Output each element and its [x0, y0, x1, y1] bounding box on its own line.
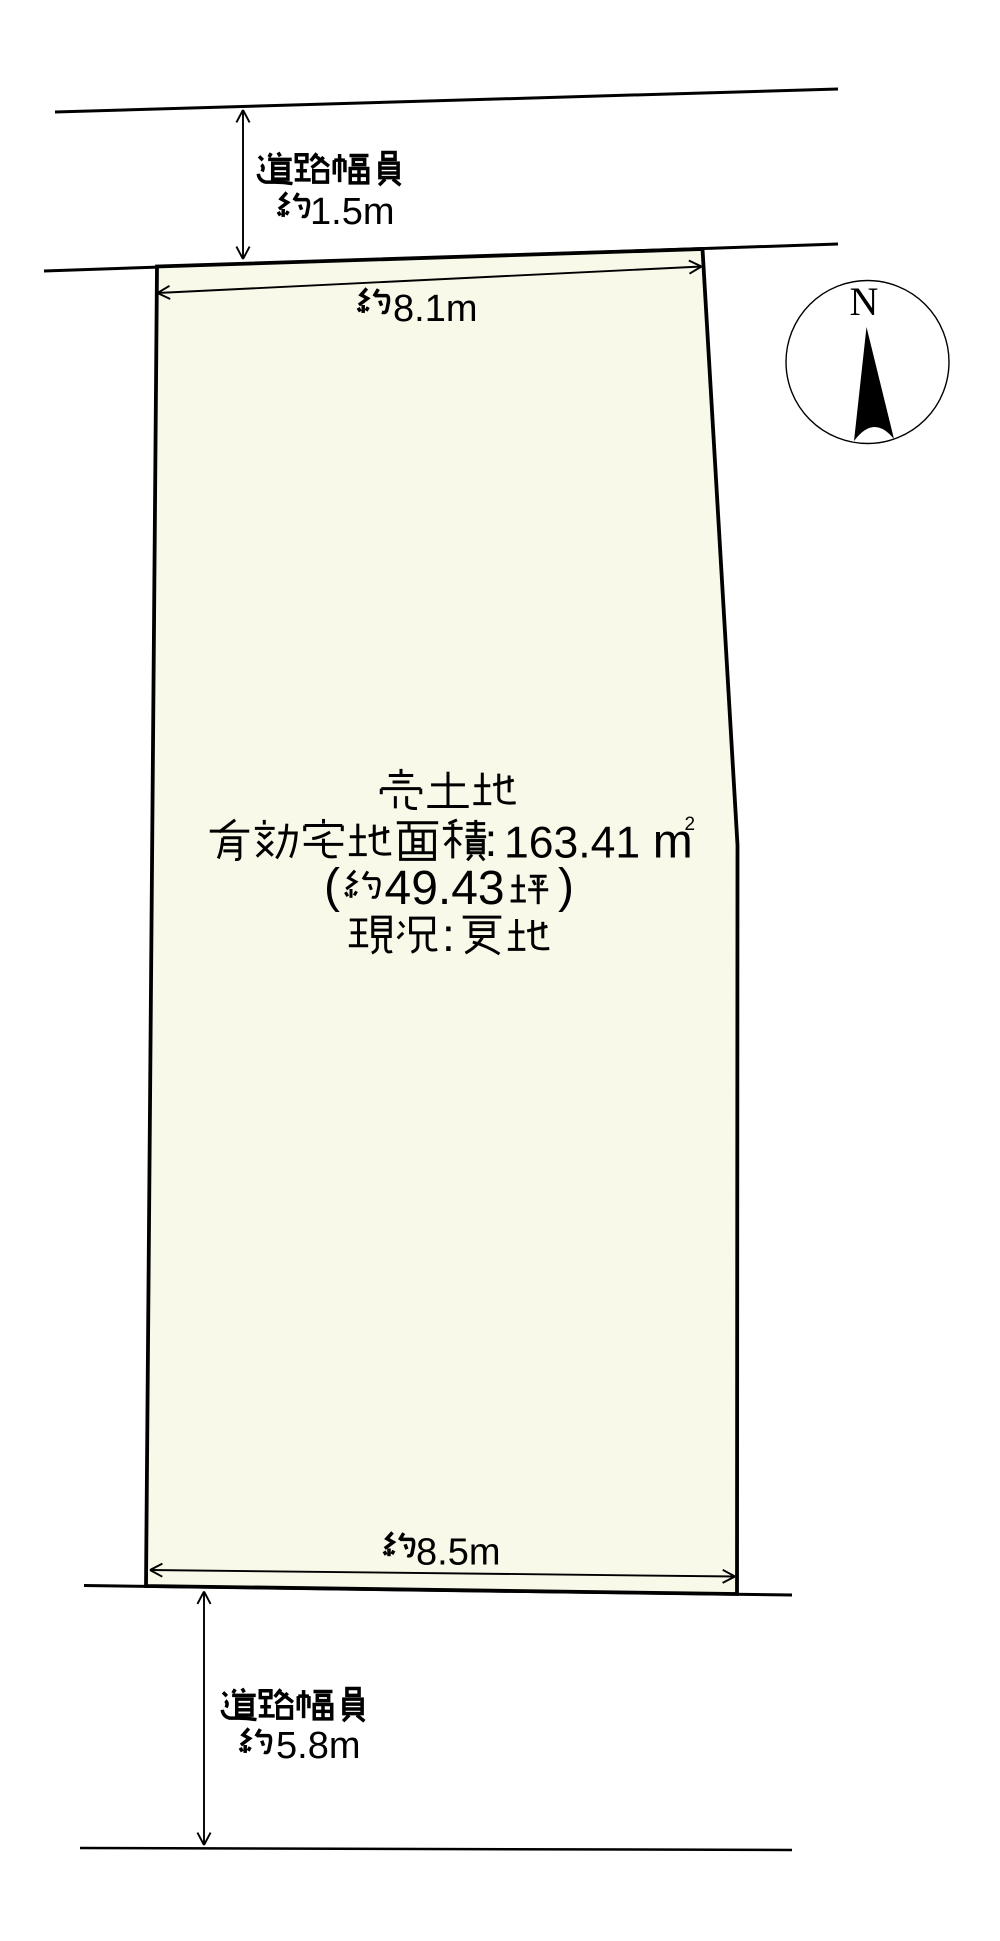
svg-text::: :: [442, 909, 455, 961]
svg-text:2: 2: [685, 814, 696, 835]
svg-text:8.5m: 8.5m: [416, 1532, 500, 1574]
svg-text::: :: [485, 814, 498, 866]
svg-text:N: N: [850, 279, 879, 324]
svg-text:(: (: [324, 860, 340, 913]
svg-text:5.8m: 5.8m: [276, 1725, 360, 1767]
svg-text:49.43: 49.43: [385, 862, 505, 915]
svg-text:8.1m: 8.1m: [393, 288, 477, 330]
svg-text:1.5m: 1.5m: [310, 191, 394, 233]
svg-text:): ): [558, 860, 574, 913]
